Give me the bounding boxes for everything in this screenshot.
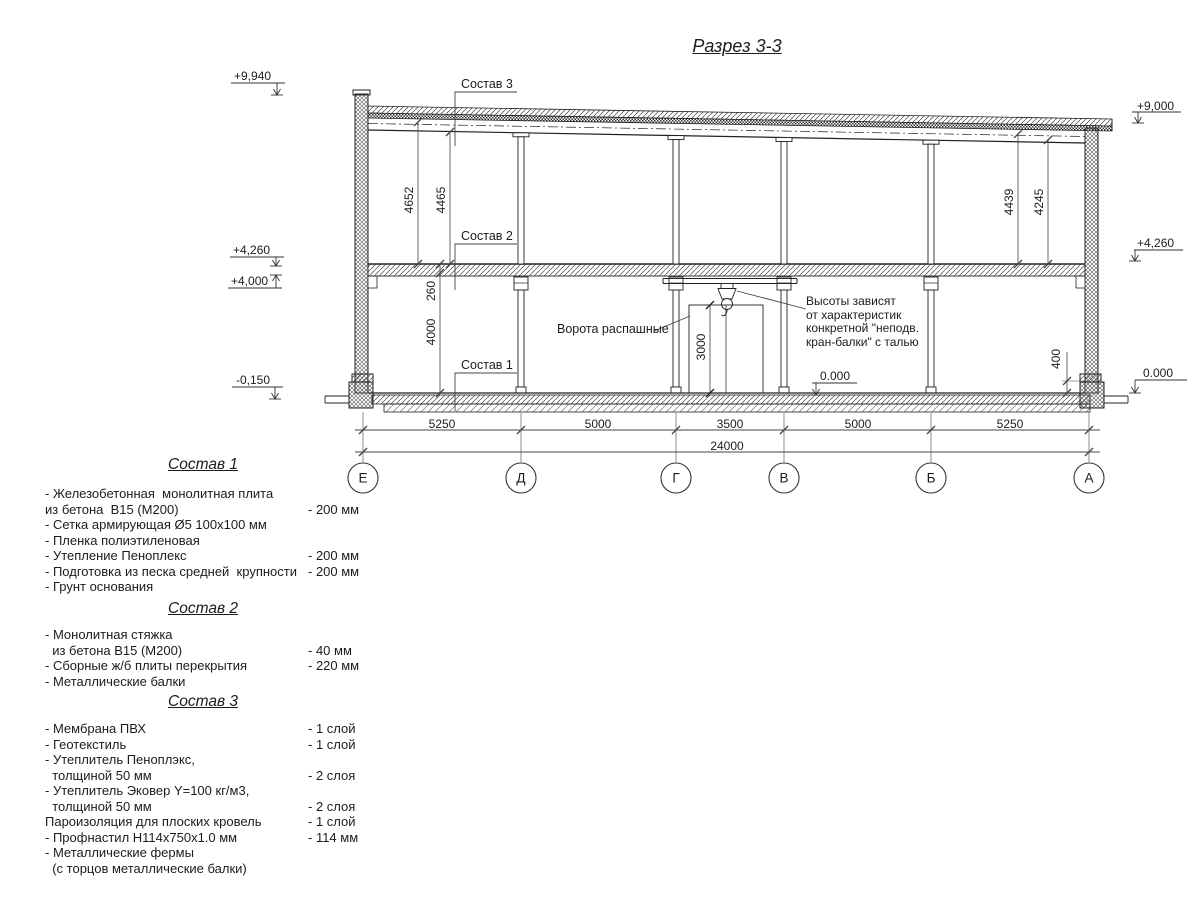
spec-line: - Монолитная стяжка bbox=[45, 627, 361, 643]
dim-slab-thickness: 260 bbox=[424, 281, 438, 301]
spec-line: из бетона В15 (М200)- 200 мм bbox=[45, 502, 361, 518]
spec-value: - 2 слоя bbox=[308, 799, 355, 815]
drawing-sheet: Разрез 3-3 +9,940 +9,000 +4,260 +4,000 -… bbox=[0, 0, 1200, 900]
callout-sostav-3: Состав 3 bbox=[461, 77, 513, 91]
spec-line: из бетона В15 (М200)- 40 мм bbox=[45, 643, 361, 659]
spec-value: - 40 мм bbox=[308, 643, 352, 659]
spec-text: - Мембрана ПВХ bbox=[45, 721, 146, 736]
spec-text: - Подготовка из песка средней крупности bbox=[45, 564, 297, 579]
spec-text: - Железобетонная монолитная плита bbox=[45, 486, 273, 501]
spec-text: толщиной 50 мм bbox=[45, 799, 152, 814]
axis-circles bbox=[348, 463, 1104, 493]
spec-text: - Сборные ж/б плиты перекрытия bbox=[45, 658, 247, 673]
elevation-roof-left: +9,940 bbox=[234, 69, 271, 83]
dim-gate-height: 3000 bbox=[694, 334, 708, 361]
spec-line: - Подготовка из песка средней крупности-… bbox=[45, 564, 361, 580]
spec-text: - Профнастил Н114х750х1.0 мм bbox=[45, 830, 237, 845]
dim-left-inner: 4465 bbox=[434, 187, 448, 214]
upper-columns bbox=[513, 133, 939, 264]
spec-text: Пароизоляция для плоских кровель bbox=[45, 814, 262, 829]
spec-line: - Мембрана ПВХ- 1 слой bbox=[45, 721, 361, 737]
spec-text: толщиной 50 мм bbox=[45, 768, 152, 783]
crane-note-line: кран-балки" с талью bbox=[806, 336, 919, 350]
axis-label-d: Д bbox=[516, 471, 525, 486]
spec-line: - Железобетонная монолитная плита bbox=[45, 486, 361, 502]
drawing-title: Разрез 3-3 bbox=[692, 36, 781, 57]
spec-heading: Состав 3 bbox=[45, 694, 361, 710]
spec-line: толщиной 50 мм- 2 слоя bbox=[45, 768, 361, 784]
spec-line: - Профнастил Н114х750х1.0 мм- 114 мм bbox=[45, 830, 361, 846]
dim-total: 24000 bbox=[710, 439, 743, 453]
dim-span-4: 5000 bbox=[845, 417, 872, 431]
spec-line: - Геотекстиль- 1 слой bbox=[45, 737, 361, 753]
elevation-roof-right: +9,000 bbox=[1137, 99, 1174, 113]
elevation-slab-top-left: +4,260 bbox=[233, 243, 270, 257]
crane-pulley bbox=[722, 299, 733, 310]
spec-line: - Сетка армирующая Ø5 100х100 мм bbox=[45, 517, 361, 533]
dim-right-inner: 4245 bbox=[1032, 189, 1046, 216]
spec-block-sostav-2: Состав 2 - Монолитная стяжка из бетона В… bbox=[45, 601, 361, 689]
spec-value: - 200 мм bbox=[308, 502, 359, 518]
spec-line: - Металлические балки bbox=[45, 674, 361, 690]
spec-block-sostav-3: Состав 3 - Мембрана ПВХ- 1 слой - Геотек… bbox=[45, 694, 361, 876]
spec-value: - 1 слой bbox=[308, 737, 356, 753]
roof bbox=[368, 106, 1112, 143]
spec-text: - Утеплитель Эковер Y=100 кг/м3, bbox=[45, 783, 249, 798]
spec-line: - Утепление Пеноплекс- 200 мм bbox=[45, 548, 361, 564]
dim-span-5: 5250 bbox=[997, 417, 1024, 431]
spec-line: (с торцов металлические балки) bbox=[45, 861, 361, 877]
spec-text: - Утеплитель Пеноплэкс, bbox=[45, 752, 195, 767]
spec-line: - Пленка полиэтиленовая bbox=[45, 533, 361, 549]
elevation-ground-left: -0,150 bbox=[236, 373, 270, 387]
dim-span-2: 5000 bbox=[585, 417, 612, 431]
elevation-slab-top-right: +4,260 bbox=[1137, 236, 1174, 250]
spec-line: - Сборные ж/б плиты перекрытия- 220 мм bbox=[45, 658, 361, 674]
crane-note-line: конкретной "неподв. bbox=[806, 322, 919, 336]
spec-text: - Сетка армирующая Ø5 100х100 мм bbox=[45, 517, 267, 532]
vertical-dimensions bbox=[414, 118, 1088, 397]
spec-value: - 200 мм bbox=[308, 564, 359, 580]
spec-line: - Утеплитель Эковер Y=100 кг/м3, bbox=[45, 783, 361, 799]
axis-label-v: В bbox=[779, 471, 788, 486]
spec-line: - Грунт основания bbox=[45, 579, 361, 595]
dim-plinth-height: 400 bbox=[1049, 349, 1063, 369]
dim-span-1: 5250 bbox=[429, 417, 456, 431]
dim-span-3: 3500 bbox=[717, 417, 744, 431]
spec-text: - Грунт основания bbox=[45, 579, 153, 594]
crane-trolley bbox=[721, 284, 733, 289]
spec-text: - Геотекстиль bbox=[45, 737, 126, 752]
axis-label-b: Б bbox=[927, 471, 936, 486]
spec-line: толщиной 50 мм- 2 слоя bbox=[45, 799, 361, 815]
spec-value: - 220 мм bbox=[308, 658, 359, 674]
spec-text: - Монолитная стяжка bbox=[45, 627, 173, 642]
callout-sostav-2: Состав 2 bbox=[461, 229, 513, 243]
crane-note-line: Высоты зависят bbox=[806, 295, 919, 309]
axis-label-g: Г bbox=[672, 471, 679, 486]
spec-text: - Утепление Пеноплекс bbox=[45, 548, 187, 563]
elevation-slab-bottom-left: +4,000 bbox=[231, 274, 268, 288]
elevation-floor-mid: 0.000 bbox=[820, 369, 850, 383]
dim-first-floor-height: 4000 bbox=[424, 319, 438, 346]
spec-text: (с торцов металлические балки) bbox=[45, 861, 247, 876]
spec-heading: Состав 1 bbox=[45, 457, 361, 473]
spec-text: из бетона В15 (М200) bbox=[45, 502, 179, 517]
spec-value: - 114 мм bbox=[308, 830, 358, 846]
crane-block bbox=[718, 289, 736, 300]
dim-left-outer: 4652 bbox=[402, 187, 416, 214]
elevation-floor-right: 0.000 bbox=[1143, 366, 1173, 380]
callout-sostav-1: Состав 1 bbox=[461, 358, 513, 372]
crane-note: Высоты зависят от характеристик конкретн… bbox=[806, 295, 919, 349]
spec-text: - Пленка полиэтиленовая bbox=[45, 533, 200, 548]
spec-text: - Металлические фермы bbox=[45, 845, 194, 860]
spec-line: Пароизоляция для плоских кровель- 1 слой bbox=[45, 814, 361, 830]
spec-line: - Металлические фермы bbox=[45, 845, 361, 861]
spec-block-sostav-1: Состав 1 - Железобетонная монолитная пли… bbox=[45, 457, 361, 595]
spec-line: - Утеплитель Пеноплэкс, bbox=[45, 752, 361, 768]
spec-value: - 2 слоя bbox=[308, 768, 355, 784]
ground-floor bbox=[325, 374, 1128, 412]
spec-value: - 1 слой bbox=[308, 814, 356, 830]
callout-gates: Ворота распашные bbox=[557, 322, 669, 336]
spec-value: - 1 слой bbox=[308, 721, 356, 737]
spec-text: - Металлические балки bbox=[45, 674, 185, 689]
crane-note-line: от характеристик bbox=[806, 309, 919, 323]
dim-right-outer: 4439 bbox=[1002, 189, 1016, 216]
axis-label-a: А bbox=[1084, 471, 1093, 486]
spec-value: - 200 мм bbox=[308, 548, 359, 564]
spec-text: из бетона В15 (М200) bbox=[45, 643, 182, 658]
floor-slab bbox=[368, 264, 1085, 276]
spec-heading: Состав 2 bbox=[45, 601, 361, 617]
